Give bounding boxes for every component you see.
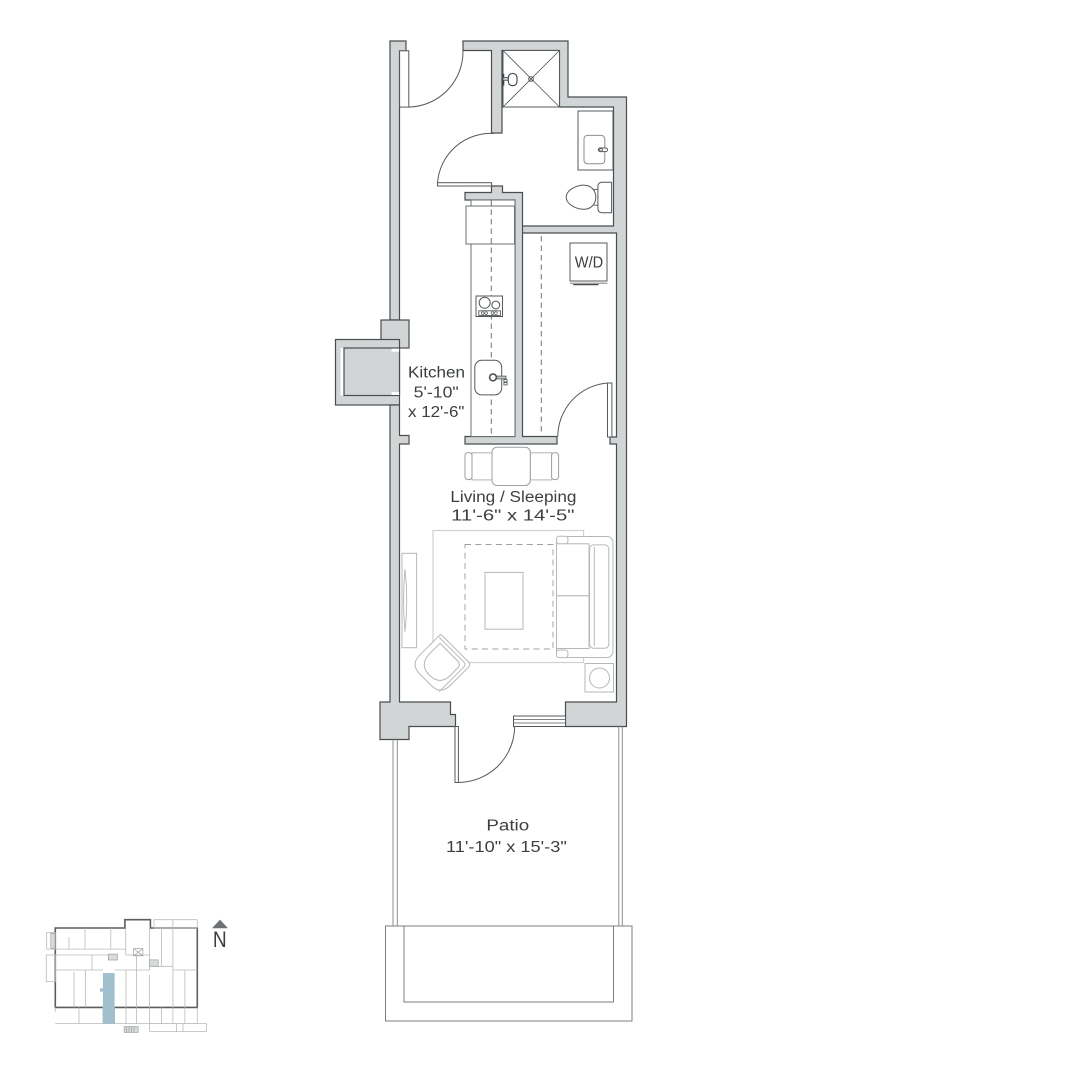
svg-text:Living / Sleeping: Living / Sleeping xyxy=(450,489,576,506)
svg-text:Kitchen: Kitchen xyxy=(408,364,465,381)
svg-text:11'-10" x 15'-3": 11'-10" x 15'-3" xyxy=(446,839,567,856)
svg-text:Patio: Patio xyxy=(486,817,529,834)
svg-text:5'-10": 5'-10" xyxy=(414,384,459,401)
svg-text:N: N xyxy=(213,927,227,952)
svg-text:11'-6" x 14'-5": 11'-6" x 14'-5" xyxy=(451,507,574,524)
svg-text:W/D: W/D xyxy=(575,254,603,271)
svg-text:x 12'-6": x 12'-6" xyxy=(408,404,464,421)
